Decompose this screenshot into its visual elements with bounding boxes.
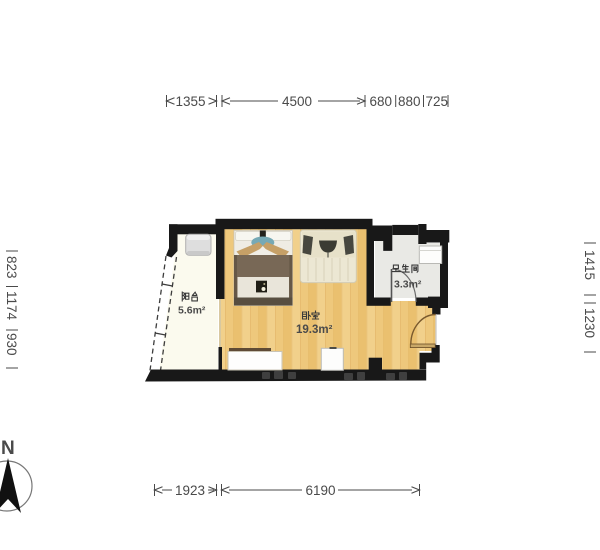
svg-text:930: 930	[4, 333, 19, 356]
svg-text:1230: 1230	[582, 308, 597, 338]
svg-text:N: N	[1, 438, 15, 459]
svg-text:680: 680	[370, 94, 393, 109]
svg-text:1174: 1174	[4, 291, 19, 321]
svg-text:5.6m²: 5.6m²	[178, 305, 206, 317]
svg-text:6190: 6190	[306, 483, 336, 498]
svg-text:1923: 1923	[175, 483, 205, 498]
svg-text:1415: 1415	[582, 250, 597, 280]
svg-text:1355: 1355	[176, 94, 206, 109]
svg-text:823: 823	[4, 256, 19, 279]
svg-text:3.3m²: 3.3m²	[394, 279, 422, 291]
svg-text:19.3m²: 19.3m²	[296, 324, 333, 336]
svg-text:4500: 4500	[282, 94, 312, 109]
svg-text:725: 725	[426, 94, 449, 109]
svg-text:880: 880	[398, 94, 421, 109]
